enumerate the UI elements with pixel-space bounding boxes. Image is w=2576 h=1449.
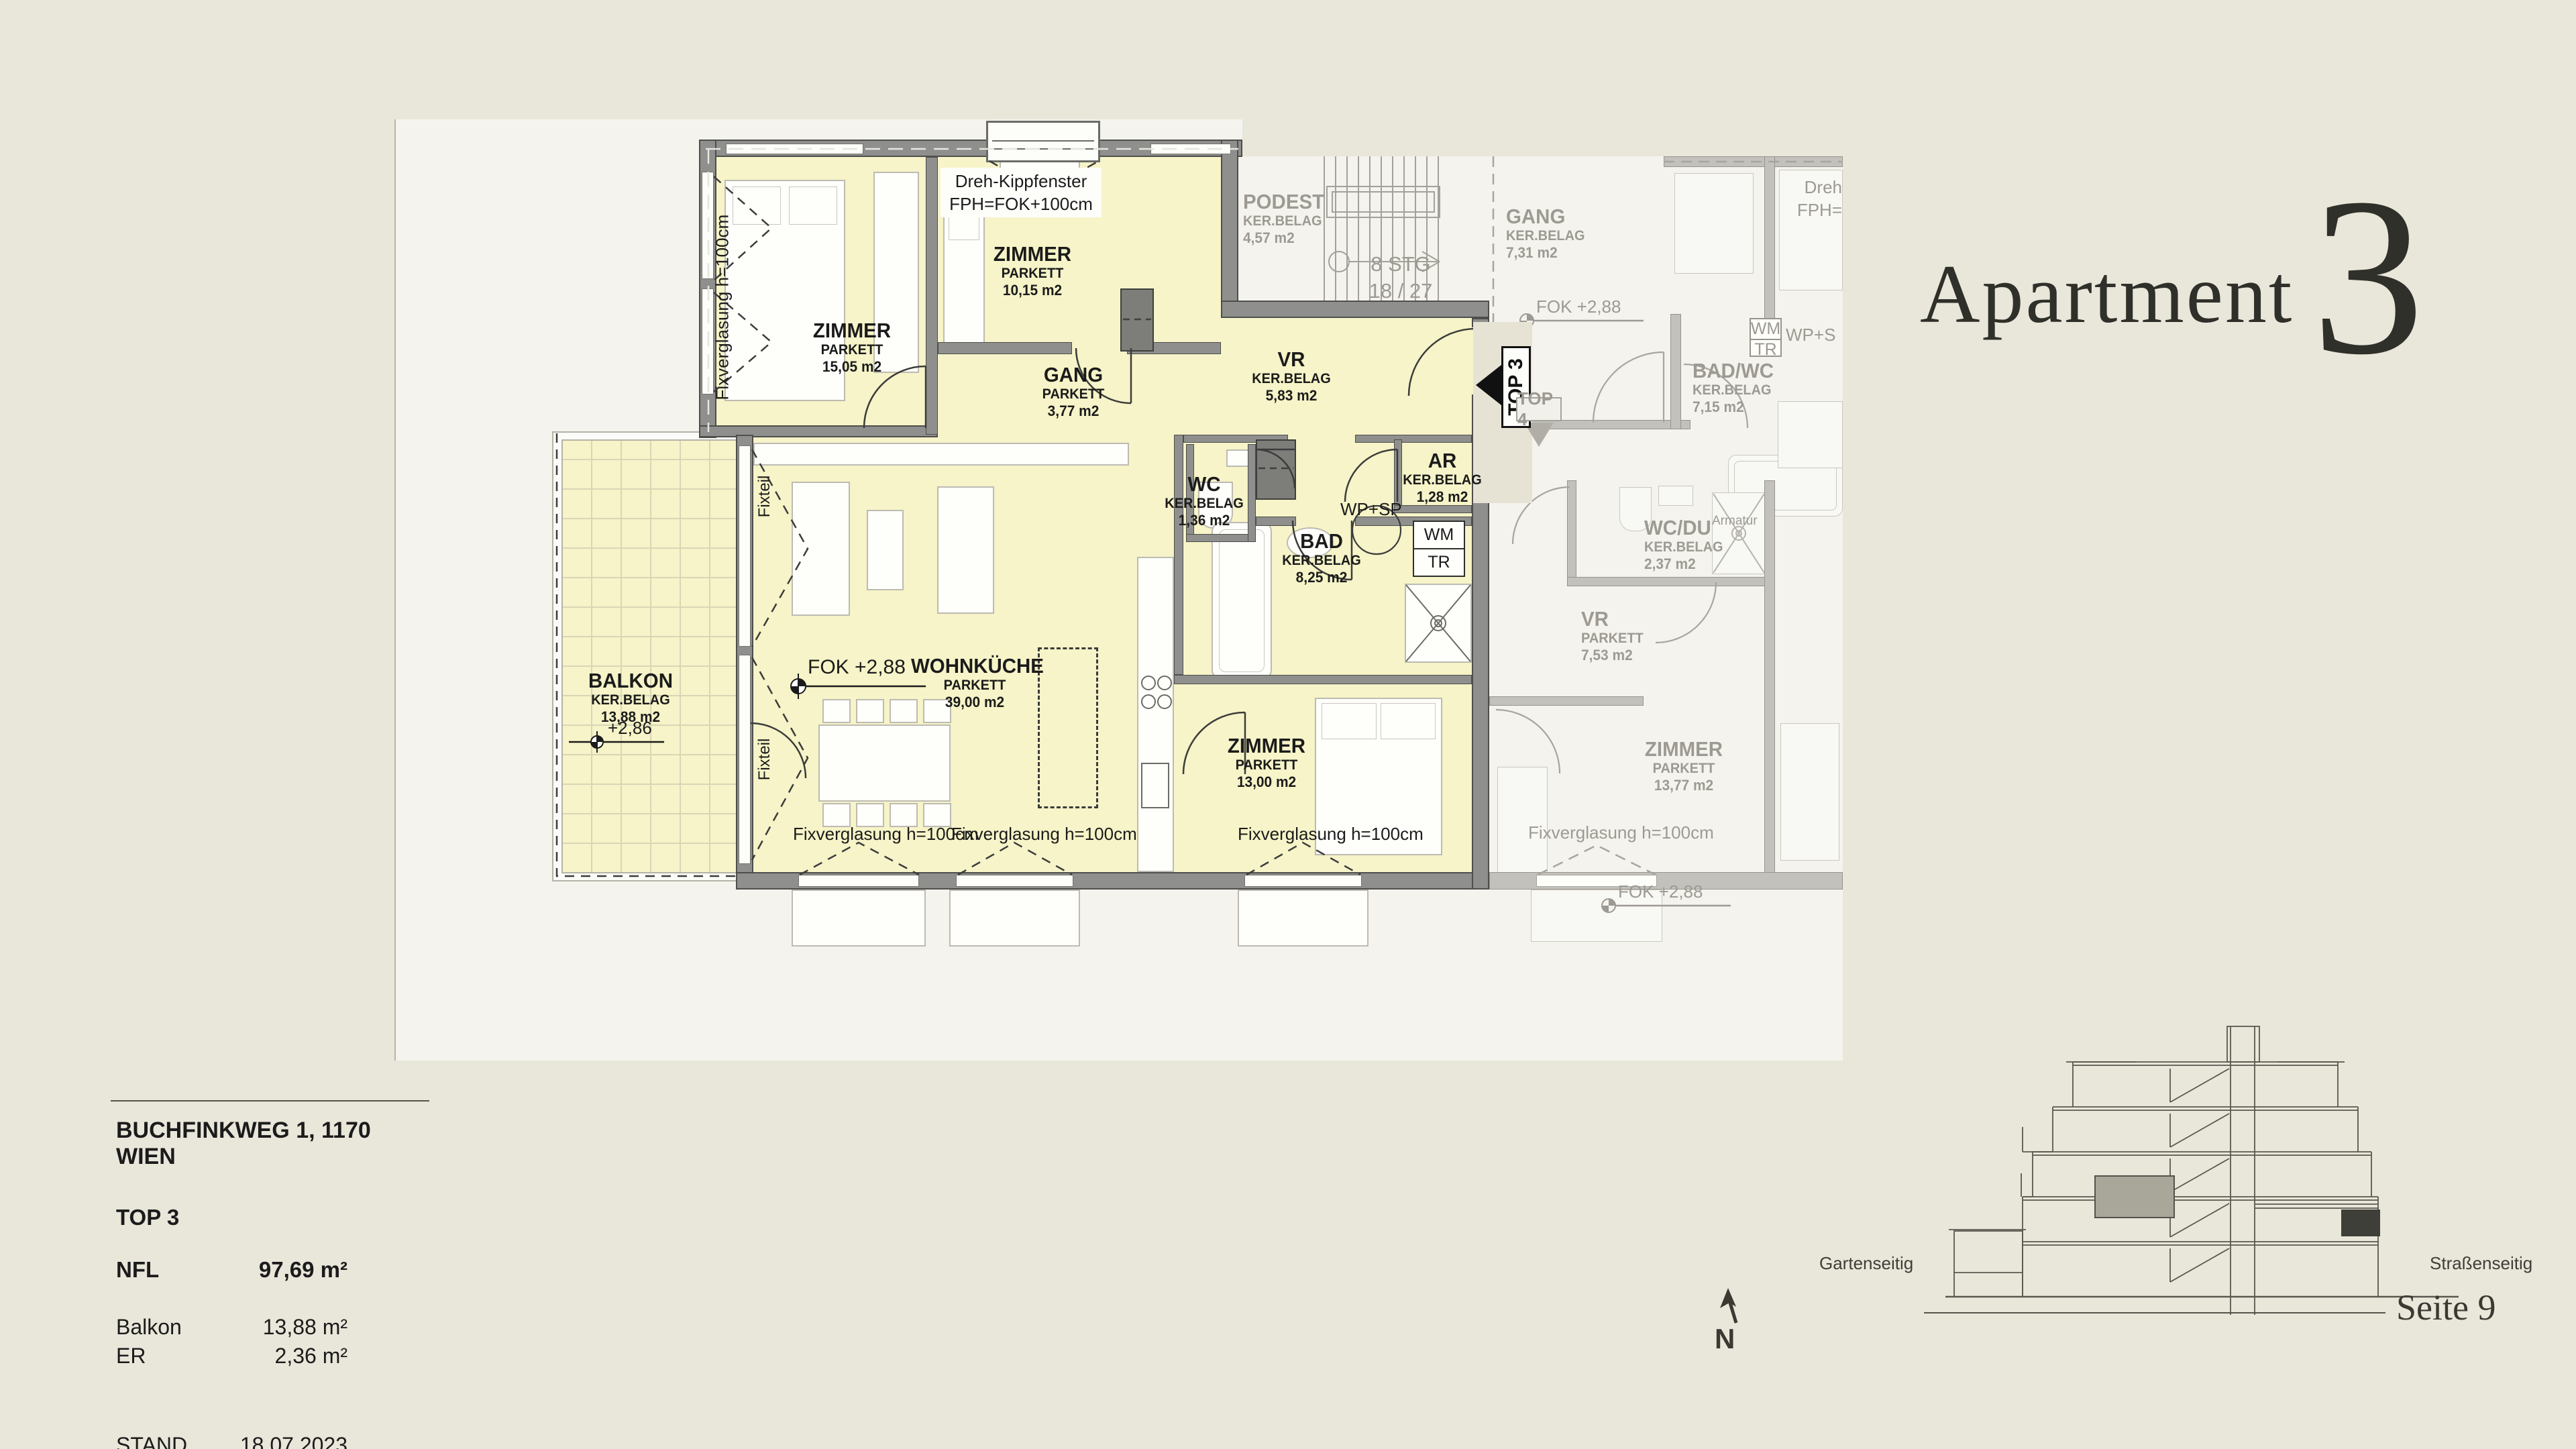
- building-section: [1942, 1010, 2465, 1325]
- room-label-neighbor-zimmer: ZIMMER PARKETT 13,77 m2: [1620, 738, 1748, 794]
- north-arrow-icon: [1709, 1285, 1756, 1327]
- section-dark-block: [2341, 1210, 2380, 1236]
- stairs-count: 8 STG: [1354, 252, 1448, 276]
- room-label-bad: BAD KER.BELAG 8,25 m2: [1265, 530, 1379, 586]
- window-note-line2: FPH=FOK+100cm: [949, 194, 1093, 214]
- fix-label-2: Fixverglasung h=100cm: [951, 824, 1137, 845]
- section-linework: [1945, 1026, 2459, 1315]
- room-label-podest: PODEST KER.BELAG 4,57 m2: [1243, 191, 1371, 246]
- room-label-gang: GANG PARKETT 3,77 m2: [1016, 364, 1131, 419]
- cut-label-dreh: Dreh: [1788, 177, 1842, 198]
- er-value: 2,36 m²: [275, 1344, 347, 1368]
- room-label-vr: VR KER.BELAG 5,83 m2: [1234, 348, 1349, 404]
- neighbor-fix-label: Fixverglasung h=100cm: [1528, 822, 1714, 843]
- room-label-wohnkueche: WOHNKÜCHE PARKETT 39,00 m2: [911, 655, 1038, 710]
- nfl-row: NFL 97,69 m²: [116, 1257, 347, 1283]
- section-label-street: Straßenseitig: [2430, 1253, 2532, 1274]
- balkon-label: Balkon: [116, 1315, 182, 1340]
- fixteil-label-2: Fixteil: [755, 729, 774, 790]
- er-label: ER: [116, 1344, 146, 1368]
- fix-label-3: Fixverglasung h=100cm: [1238, 824, 1424, 845]
- stairs-ratio: 18 / 27: [1354, 279, 1448, 303]
- page: WM TR WM TR: [0, 0, 2576, 1449]
- room-label-balkon: BALKON KER.BELAG 13,88 m2: [574, 669, 688, 725]
- page-number: Seite 9: [2396, 1287, 2495, 1328]
- stand-row: STAND 18.07.2023: [116, 1433, 347, 1449]
- address: BUCHFINKWEG 1, 1170 WIEN: [116, 1118, 433, 1170]
- floorplan-panel: WM TR WM TR: [394, 119, 1843, 1061]
- section-label-garden: Gartenseitig: [1819, 1253, 1913, 1274]
- info-divider: [111, 1100, 429, 1102]
- window-note-line1: Dreh-Kippfenster: [955, 171, 1087, 191]
- page-title: Apartment: [1920, 247, 2294, 342]
- room-label-neighbor-vr: VR PARKETT 7,53 m2: [1581, 608, 1709, 663]
- north-label: N: [1715, 1323, 1735, 1355]
- fok-label: FOK +2,88: [808, 656, 906, 679]
- neighbor-wps-label: WP+S: [1786, 325, 1835, 345]
- room-label-neighbor-gang: GANG KER.BELAG 7,31 m2: [1506, 205, 1633, 261]
- neighbor-fok-label-1: FOK +2,88: [1536, 297, 1621, 317]
- fix-label-west: Fixverglasung h=100cm: [712, 219, 733, 400]
- neighbor-fok-label-2: FOK +2,88: [1618, 881, 1703, 902]
- room-label-wc: WC KER.BELAG 1,36 m2: [1153, 473, 1255, 529]
- cut-label-fph: FPH=: [1788, 200, 1842, 221]
- neighbor-armatur-label: Armatur: [1712, 514, 1758, 529]
- room-label-neighbor-badwc: BAD/WC KER.BELAG 7,15 m2: [1693, 360, 1820, 415]
- section-highlight-apartment3: [2095, 1176, 2174, 1218]
- page-number-line: [1924, 1312, 2385, 1313]
- nfl-label: NFL: [116, 1257, 159, 1283]
- stove-burners: [1142, 676, 1171, 808]
- stand-label: STAND: [116, 1433, 187, 1449]
- stand-value: 18.07.2023: [240, 1433, 347, 1449]
- balkon-value: 13,88 m²: [263, 1315, 347, 1340]
- balkon-row: Balkon 13,88 m²: [116, 1315, 347, 1340]
- window-note-box: Dreh-Kippfenster FPH=FOK+100cm: [941, 168, 1102, 217]
- room-label-ar: AR KER.BELAG 1,28 m2: [1385, 449, 1500, 505]
- er-row: ER 2,36 m²: [116, 1344, 347, 1368]
- fixteil-label-1: Fixteil: [755, 466, 774, 527]
- room-label-zimmer10: ZIMMER PARKETT 10,15 m2: [975, 243, 1090, 299]
- top4-marker: TOP 4: [1516, 397, 1562, 421]
- apartment-number: 3: [2294, 164, 2442, 389]
- room-label-zimmer13: ZIMMER PARKETT 13,00 m2: [1210, 735, 1324, 790]
- shower-x: [1406, 585, 1470, 661]
- room-label-zimmer15: ZIMMER PARKETT 15,05 m2: [795, 319, 910, 375]
- wpsp-label: WP+SP: [1340, 499, 1402, 520]
- unit-label: TOP 3: [116, 1205, 433, 1230]
- nfl-value: 97,69 m²: [259, 1257, 347, 1283]
- info-block: BUCHFINKWEG 1, 1170 WIEN TOP 3 NFL 97,69…: [111, 1100, 433, 1449]
- balcony-level-label: +2,86: [608, 718, 652, 739]
